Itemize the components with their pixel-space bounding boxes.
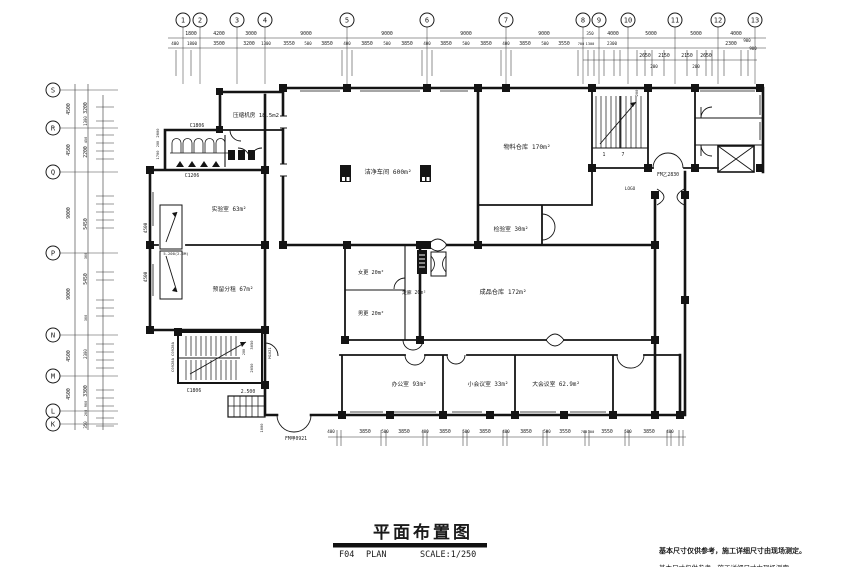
dim-label: 4500	[66, 103, 72, 115]
dim-label: 3850	[321, 41, 333, 47]
dim-label: 2650	[700, 53, 712, 59]
dim-label: 200	[692, 64, 700, 69]
annotation-label: 3050	[249, 340, 254, 350]
room-label: 洁净车间 600m²	[364, 168, 411, 176]
grid-bubble-label: 6	[425, 17, 429, 25]
title-underline-bar	[333, 543, 487, 548]
top-dims-row3: 2650215021502650200200900900	[639, 38, 757, 69]
dim-label: 400	[666, 429, 674, 434]
room-label: 实验室 63m²	[212, 205, 247, 213]
dim-label: 900	[743, 38, 751, 43]
grid-bubble-label: L	[51, 408, 55, 416]
grid-bubble-label: S	[51, 87, 55, 95]
annotation-label: C0928A C0928A	[170, 341, 175, 371]
note-crop-mask	[650, 567, 850, 575]
grid-bubble-label: M	[51, 373, 55, 381]
dim-label: 4500	[66, 388, 72, 400]
dim-label: 2300	[607, 41, 618, 46]
room-label: 压缩机房 18.5m2	[233, 111, 279, 119]
dim-label: 3850	[359, 429, 371, 435]
dim-label: 500	[383, 41, 391, 46]
dim-label: 300	[588, 430, 595, 434]
dim-label: 400	[502, 429, 510, 434]
top-dims-row2: 4001800350032001300355050038504003850500…	[171, 41, 737, 47]
ramp-bottom	[228, 396, 265, 417]
dim-label: 4500	[66, 350, 72, 362]
grid-bubble-label: 9	[597, 17, 601, 25]
dim-label: 200	[650, 64, 658, 69]
dim-label: 3850	[401, 41, 413, 47]
dim-label: 2650	[639, 53, 651, 59]
dim-label: 9000	[460, 31, 472, 37]
dim-label: 3850	[643, 429, 655, 435]
room-label: 大会议室 62.9m²	[532, 380, 580, 388]
annotation-label: 2050	[249, 363, 254, 373]
floor-plan-svg: 12345678910111213 SRQPNMLK 1800420030009…	[0, 0, 850, 575]
annotation-label: 7	[622, 152, 625, 158]
room-label: 走廊 20m²	[402, 289, 426, 296]
annotation-label: 200	[634, 89, 639, 97]
dim-label: 3300	[83, 385, 89, 397]
dim-label: 1300	[83, 116, 88, 126]
dim-label: 3850	[440, 41, 452, 47]
dim-label: 400	[423, 41, 431, 46]
annotation-label: 1700	[155, 150, 160, 160]
dim-label: 500	[624, 429, 632, 434]
grid-bubble-label: 2	[198, 17, 202, 25]
dim-label: 400	[502, 41, 510, 46]
grid-bubble-label: 1	[181, 17, 185, 25]
dim-label: 5000	[690, 31, 702, 37]
dim-label: 9000	[300, 31, 312, 37]
annotation-label: FM乙2830	[657, 171, 679, 178]
dim-label: 500	[462, 429, 470, 434]
dim-label: 3550	[601, 429, 613, 435]
dim-label: 3500	[213, 41, 225, 47]
left-dims-outer: 450045009000900045004500	[66, 103, 72, 400]
dim-label: 400	[343, 41, 351, 46]
dim-label: 350	[586, 31, 594, 36]
dim-label: 2150	[681, 53, 693, 59]
annotation-label: 1	[603, 152, 606, 158]
dim-label: 500	[541, 41, 549, 46]
annotation-label: C1806	[187, 388, 202, 394]
annotation-label: 200	[242, 349, 246, 355]
grid-bubble-label: 10	[624, 17, 632, 25]
dim-label: 1800	[187, 41, 198, 46]
dim-label: 500	[381, 429, 389, 434]
dim-label: 4500	[66, 144, 72, 156]
grid-bubbles-top: 12345678910111213	[176, 13, 762, 84]
annotation-label: FM甲0921	[285, 436, 307, 442]
dim-label: 3850	[439, 429, 451, 435]
dim-label: 300	[84, 253, 88, 260]
dim-label: 9000	[66, 288, 72, 300]
dim-label: 900	[84, 401, 88, 408]
annotation-label: C1806	[190, 123, 205, 129]
dim-label: 900	[749, 46, 757, 51]
dim-label: 500	[462, 41, 470, 46]
dim-label: 400	[171, 41, 179, 46]
dim-label: 500	[543, 429, 551, 434]
dim-label: 3200	[83, 102, 89, 114]
annotation-label: M1021	[267, 347, 272, 359]
grid-bubble-label: 3	[235, 17, 239, 25]
grid-bubble-label: 11	[671, 17, 679, 25]
dim-label: 3200	[243, 41, 255, 47]
annotation-label: 2600	[155, 128, 160, 138]
dim-label: 4200	[213, 31, 225, 37]
sheet-type: PLAN	[366, 550, 386, 560]
annotation-label: 5.200(2.6M)	[163, 251, 188, 256]
dim-label: 700	[578, 42, 585, 46]
grid-bubble-label: N	[51, 332, 55, 340]
dim-label: 1800	[185, 31, 197, 37]
grid-bubble-label: 13	[751, 17, 759, 25]
room-label: 办公室 93m²	[392, 380, 427, 388]
room-label: 成品仓库 172m²	[479, 288, 526, 296]
dim-label: 200	[84, 410, 88, 417]
grid-bubble-label: 5	[345, 17, 349, 25]
dim-label: 9000	[66, 207, 72, 219]
top-dims-row1: 1800420030009000900090009000350400050005…	[185, 31, 742, 37]
annotation-label: 4500	[143, 271, 149, 282]
grid-bubble-label: 8	[581, 17, 585, 25]
title-block: 平面布置图 F04 PLAN SCALE:1/250	[333, 522, 487, 560]
grid-bubble-label: 12	[714, 17, 722, 25]
dim-label: 4000	[730, 31, 742, 37]
annotation-label: 1000	[259, 423, 264, 433]
grid-bubble-label: P	[51, 250, 55, 258]
dim-label: 3550	[558, 41, 570, 47]
scale-label: SCALE:1/250	[420, 550, 476, 560]
drawing-title: 平面布置图	[373, 522, 473, 543]
note-line-1: 基本尺寸仅供参考，施工详细尺寸由现场测定。	[658, 546, 806, 555]
annotation-label: LOGO	[625, 186, 636, 192]
dim-label: 9000	[381, 31, 393, 37]
dim-label: 3000	[245, 31, 257, 37]
dim-label: 3850	[398, 429, 410, 435]
room-labels: 压缩机房 18.5m2洁净车间 600m²物料仓库 170m²检验室 30m²实…	[212, 111, 580, 388]
dim-label: 5450	[83, 273, 89, 285]
stair-top-right	[596, 96, 641, 148]
dim-label: 3550	[559, 429, 571, 435]
annotation-label: C1206	[185, 173, 200, 179]
room-label: 男更 20m²	[358, 310, 384, 317]
dim-label: 400	[327, 429, 335, 434]
elevator-shaft	[718, 146, 754, 172]
room-label: 预留分租 67m²	[213, 285, 254, 293]
room-label: 女更 20m²	[358, 268, 384, 276]
room-label: 检验室 30m²	[494, 225, 529, 233]
toilet-fixtures	[170, 139, 255, 168]
dim-label: 2300	[725, 41, 737, 47]
dim-label: 2300	[83, 349, 88, 359]
notes-block: 基本尺寸仅供参考，施工详细尺寸由现场测定。 基本尺寸仅供参考，施工详细尺寸由现场…	[650, 546, 850, 575]
dim-label: 2200	[83, 146, 89, 158]
stair-bottom-left	[178, 332, 262, 383]
annotation-labels: C1806C1206C1806C0928A C0928AM10213050205…	[143, 89, 679, 442]
dim-label: 3850	[480, 41, 492, 47]
dim-label: 5000	[645, 31, 657, 37]
dim-label: 500	[304, 41, 312, 46]
dim-label: 5450	[83, 218, 89, 230]
annotation-label: 200	[156, 141, 160, 147]
dim-label: 1300	[586, 42, 595, 46]
grid-bubble-label: 4	[263, 17, 267, 25]
structural-columns	[146, 84, 764, 419]
annotation-label: 2.500	[241, 389, 256, 395]
sheet-code: F04	[339, 550, 354, 560]
walls-outer	[150, 88, 763, 415]
grid-bubble-label: 7	[504, 17, 508, 25]
annotation-label: 4500	[143, 222, 149, 233]
bottom-dims: 4003850500385040038505003850400385050035…	[327, 429, 674, 435]
dim-label: 700	[581, 430, 588, 434]
hall-equipment-blocks	[340, 165, 446, 276]
room-label: 小会议室 33m²	[468, 380, 509, 388]
dim-label: 3850	[361, 41, 373, 47]
dim-label: 450	[84, 137, 88, 144]
grid-bubble-label: Q	[51, 169, 55, 177]
dim-label: 350	[83, 421, 88, 429]
dim-label: 3550	[283, 41, 295, 47]
dim-label: 3850	[479, 429, 491, 435]
dim-label: 300	[84, 315, 88, 322]
dim-label: 4000	[607, 31, 619, 37]
dim-label: 2150	[658, 53, 670, 59]
left-ruler-ticks	[96, 107, 114, 426]
dim-label: 3850	[520, 429, 532, 435]
dim-label: 1300	[261, 41, 271, 46]
dim-label: 3850	[519, 41, 531, 47]
floor-plan-drawing: 12345678910111213 SRQPNMLK 1800420030009…	[0, 0, 850, 575]
room-label: 物料仓库 170m²	[503, 143, 550, 151]
dim-label: 9000	[538, 31, 550, 37]
dim-label: 400	[421, 429, 429, 434]
